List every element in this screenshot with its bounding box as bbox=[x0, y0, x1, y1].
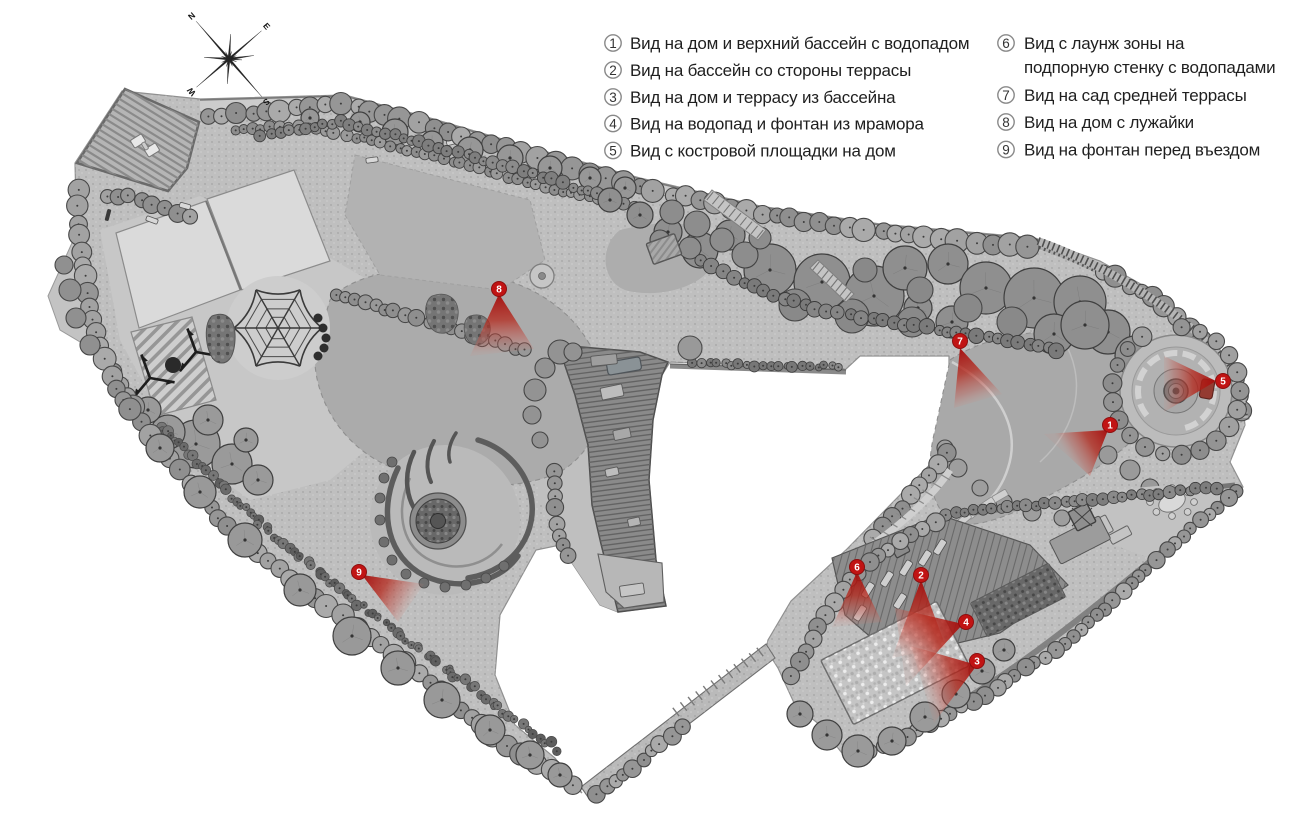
svg-text:Вид на бассейн со стороны терр: Вид на бассейн со стороны террасы bbox=[630, 61, 911, 80]
svg-text:4: 4 bbox=[963, 618, 969, 629]
svg-text:N: N bbox=[186, 10, 197, 22]
svg-text:8: 8 bbox=[1002, 115, 1010, 130]
svg-text:Вид с костровой площадки на до: Вид с костровой площадки на дом bbox=[630, 142, 896, 161]
svg-text:6: 6 bbox=[1002, 36, 1010, 51]
svg-text:9: 9 bbox=[1002, 142, 1010, 157]
svg-text:3: 3 bbox=[609, 90, 617, 105]
svg-text:2: 2 bbox=[609, 63, 617, 78]
svg-text:Вид на дом и верхний бассейн с: Вид на дом и верхний бассейн с водопадом bbox=[630, 34, 969, 53]
svg-text:8: 8 bbox=[496, 285, 502, 296]
svg-text:подпорную стенку с водопадами: подпорную стенку с водопадами bbox=[1024, 58, 1275, 77]
svg-text:7: 7 bbox=[1002, 88, 1010, 103]
svg-text:3: 3 bbox=[974, 657, 980, 668]
svg-text:7: 7 bbox=[957, 337, 963, 348]
svg-text:2: 2 bbox=[918, 571, 924, 582]
svg-text:Вид на дом и террасу из бассей: Вид на дом и террасу из бассейна bbox=[630, 88, 896, 107]
svg-text:Вид на водопад и фонтан из мра: Вид на водопад и фонтан из мрамора bbox=[630, 115, 924, 134]
svg-text:5: 5 bbox=[609, 143, 617, 158]
svg-text:6: 6 bbox=[854, 563, 860, 574]
svg-text:W: W bbox=[184, 85, 197, 98]
svg-text:Вид с лаунж зоны на: Вид с лаунж зоны на bbox=[1024, 34, 1185, 53]
svg-text:Вид на сад средней террасы: Вид на сад средней террасы bbox=[1024, 86, 1247, 105]
svg-text:Вид на фонтан перед въездом: Вид на фонтан перед въездом bbox=[1024, 141, 1260, 160]
svg-text:Вид на дом с лужайки: Вид на дом с лужайки bbox=[1024, 113, 1194, 132]
svg-text:1: 1 bbox=[1107, 421, 1113, 432]
svg-text:E: E bbox=[261, 21, 272, 32]
svg-text:9: 9 bbox=[356, 568, 362, 579]
svg-text:4: 4 bbox=[609, 116, 617, 131]
svg-text:1: 1 bbox=[609, 36, 617, 51]
svg-text:5: 5 bbox=[1220, 377, 1226, 388]
